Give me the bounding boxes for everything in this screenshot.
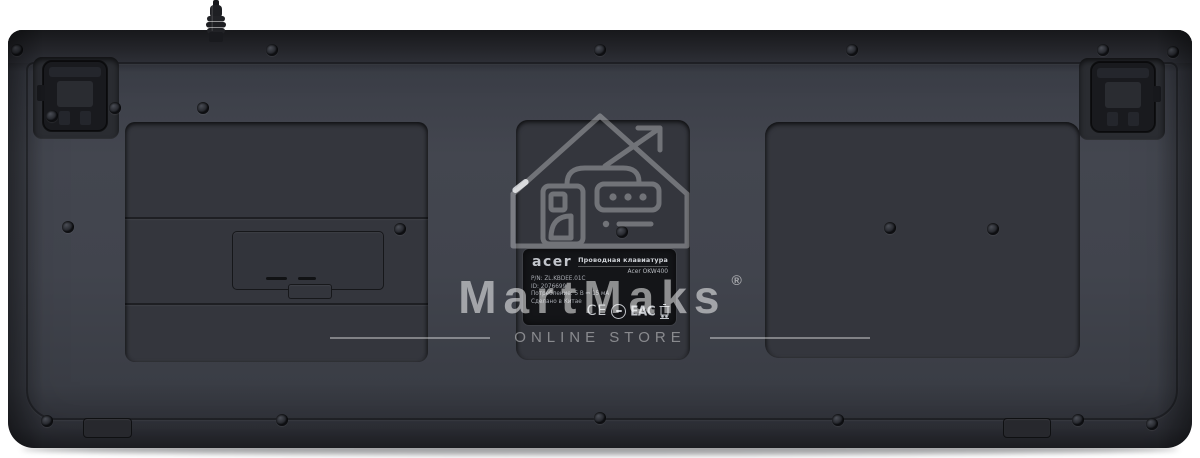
label-part-number: P/N: ZL.KBDEE.01C (531, 276, 609, 284)
keyboard-back-shell: acer Проводная клавиатура Acer OKW400 P/… (8, 30, 1192, 448)
back-cover-seam (26, 62, 1178, 420)
screw (276, 414, 288, 426)
cert-circle-icon (611, 304, 626, 319)
eac-mark-icon: EAC (630, 303, 655, 319)
screw (832, 414, 844, 426)
label-id: ID: 2076699 (531, 284, 609, 292)
screw (46, 110, 58, 122)
label-model: Acer OKW400 (578, 266, 668, 275)
screw (197, 102, 209, 114)
rubber-foot-pad (1003, 418, 1051, 438)
recessed-panel-right (765, 122, 1080, 358)
ce-mark-icon: CE (587, 303, 608, 319)
access-door (232, 231, 384, 290)
usb-cable-icon (196, 0, 236, 44)
screw (1097, 44, 1109, 56)
screw (884, 222, 896, 234)
label-product-type: Проводная клавиатура (578, 256, 668, 264)
product-label: acer Проводная клавиатура Acer OKW400 P/… (523, 249, 676, 325)
tilt-foot-recess-left (33, 57, 119, 139)
top-edge (8, 30, 1192, 63)
rubber-foot-pad (83, 418, 132, 438)
tilt-foot-icon (1079, 58, 1165, 140)
screw (11, 44, 23, 56)
screw (41, 415, 53, 427)
screw (62, 221, 74, 233)
label-origin: Сделано в Китае (531, 299, 609, 307)
glare-highlight (511, 178, 530, 194)
recessed-panel-left (125, 122, 428, 362)
screw (1072, 414, 1084, 426)
panel-seam (125, 303, 428, 305)
acer-logo: acer (532, 254, 572, 270)
recessed-panel-center (516, 120, 690, 360)
door-latch (288, 284, 332, 299)
screw (594, 412, 606, 424)
door-slot (266, 277, 287, 280)
door-slot (298, 277, 316, 280)
screw (616, 226, 628, 238)
screw (109, 102, 121, 114)
tilt-foot-recess-right (1079, 58, 1165, 140)
screw (1146, 418, 1158, 430)
screw (987, 223, 999, 235)
screw (846, 44, 858, 56)
tilt-foot-icon (33, 57, 119, 139)
screw (1167, 46, 1179, 58)
keyboard-product-photo: acer Проводная клавиатура Acer OKW400 P/… (0, 0, 1200, 458)
weee-bin-icon (659, 303, 670, 319)
label-power: Потребление: 5 В ⎓ 15 мА (531, 291, 609, 299)
screw (594, 44, 606, 56)
panel-seam (125, 217, 428, 219)
screw (266, 44, 278, 56)
screw (394, 223, 406, 235)
